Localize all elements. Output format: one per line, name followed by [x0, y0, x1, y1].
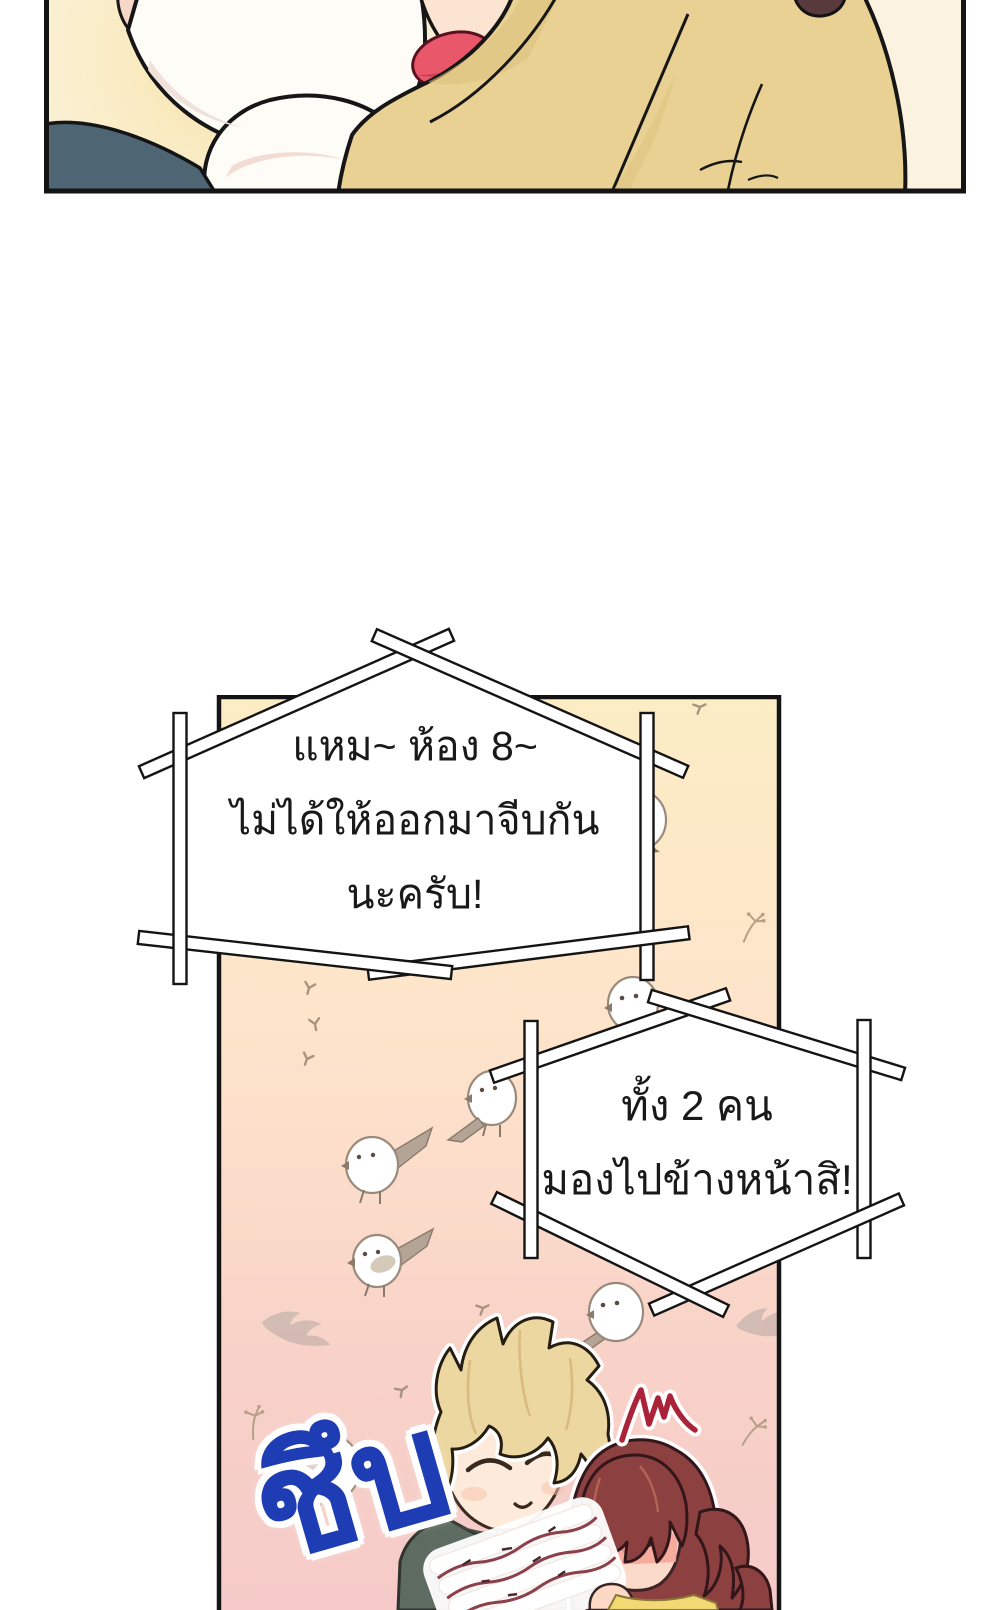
bubble2-line1: ทั้ง 2 คน	[621, 1075, 773, 1129]
speech-bubbles: แหม~ ห้อง 8~ ไม่ได้ให้ออกมาจีบกัน นะครับ…	[0, 600, 1000, 1360]
bubble1-line3: นะครับ!	[347, 871, 484, 917]
bubble1-line1: แหม~ ห้อง 8~	[292, 723, 538, 769]
speech-bubble-1: แหม~ ห้อง 8~ ไม่ได้ให้ออกมาจีบกัน นะครับ…	[138, 629, 690, 984]
bubble1-line2: ไม่ได้ให้ออกมาจีบกัน	[228, 797, 600, 843]
speech-bubble-2: ทั้ง 2 คน มองไปข้างหน้าสิ!	[490, 988, 905, 1317]
panel-top	[0, 0, 1000, 200]
bubble2-line2: มองไปข้างหน้าสิ!	[541, 1156, 852, 1203]
comic-page: แหม~ ห้อง 8~ ไม่ได้ให้ออกมาจีบกัน นะครับ…	[0, 0, 1000, 1610]
